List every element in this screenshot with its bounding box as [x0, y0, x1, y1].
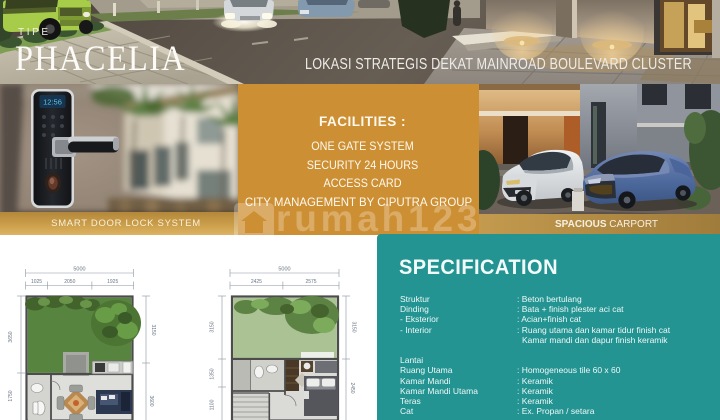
- svg-text:3150: 3150: [150, 324, 156, 335]
- svg-text:2575: 2575: [305, 279, 316, 285]
- svg-text:1350: 1350: [210, 368, 216, 379]
- svg-text:3600: 3600: [148, 395, 154, 406]
- svg-text:2425: 2425: [251, 279, 262, 285]
- svg-text:5000: 5000: [73, 267, 85, 273]
- svg-text:1750: 1750: [8, 390, 14, 401]
- svg-text:1025: 1025: [31, 279, 42, 285]
- svg-text:3650: 3650: [8, 331, 14, 342]
- svg-text:1100: 1100: [210, 399, 216, 410]
- svg-text:3150: 3150: [210, 321, 216, 332]
- svg-text:12:56: 12:56: [43, 98, 62, 107]
- svg-text:2050: 2050: [64, 279, 75, 285]
- svg-text:1925: 1925: [107, 279, 118, 285]
- svg-text:2450: 2450: [349, 382, 355, 393]
- svg-text:5000: 5000: [278, 267, 290, 273]
- svg-text:3150: 3150: [351, 321, 357, 332]
